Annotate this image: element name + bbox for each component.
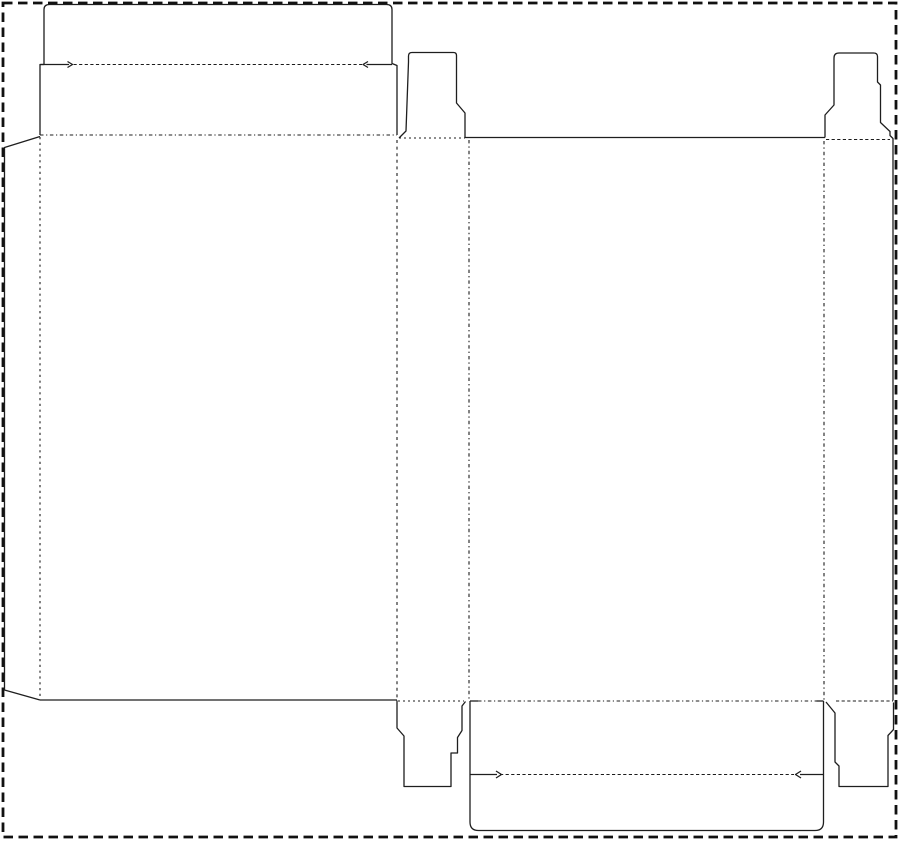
dieline-canvas (0, 0, 900, 841)
dieline-drawing (0, 0, 900, 841)
cut-line-bottom-crease-right-shoulder (796, 771, 824, 778)
cut-line-top-lid-and-tuck-outline (40, 5, 397, 136)
cut-line-bottom-lid-and-tuck-outline (470, 701, 824, 831)
cut-line-bottom-dust-flap-side1 (397, 701, 466, 787)
cut-line-lid-crease-right-shoulder (363, 62, 392, 68)
cut-line-bottom-dust-flap-side2 (826, 702, 894, 787)
cut-line-bottom-crease-left-shoulder (470, 771, 502, 778)
cut-line-top-dust-flap-side1 (399, 53, 465, 139)
cut-line-lid-crease-left-shoulder (41, 62, 73, 68)
cut-line-top-dust-flap-side2-and-right-edge (825, 53, 893, 701)
outer-dashed-border (3, 3, 896, 837)
cut-line-glue-flap-edge (5, 137, 41, 701)
